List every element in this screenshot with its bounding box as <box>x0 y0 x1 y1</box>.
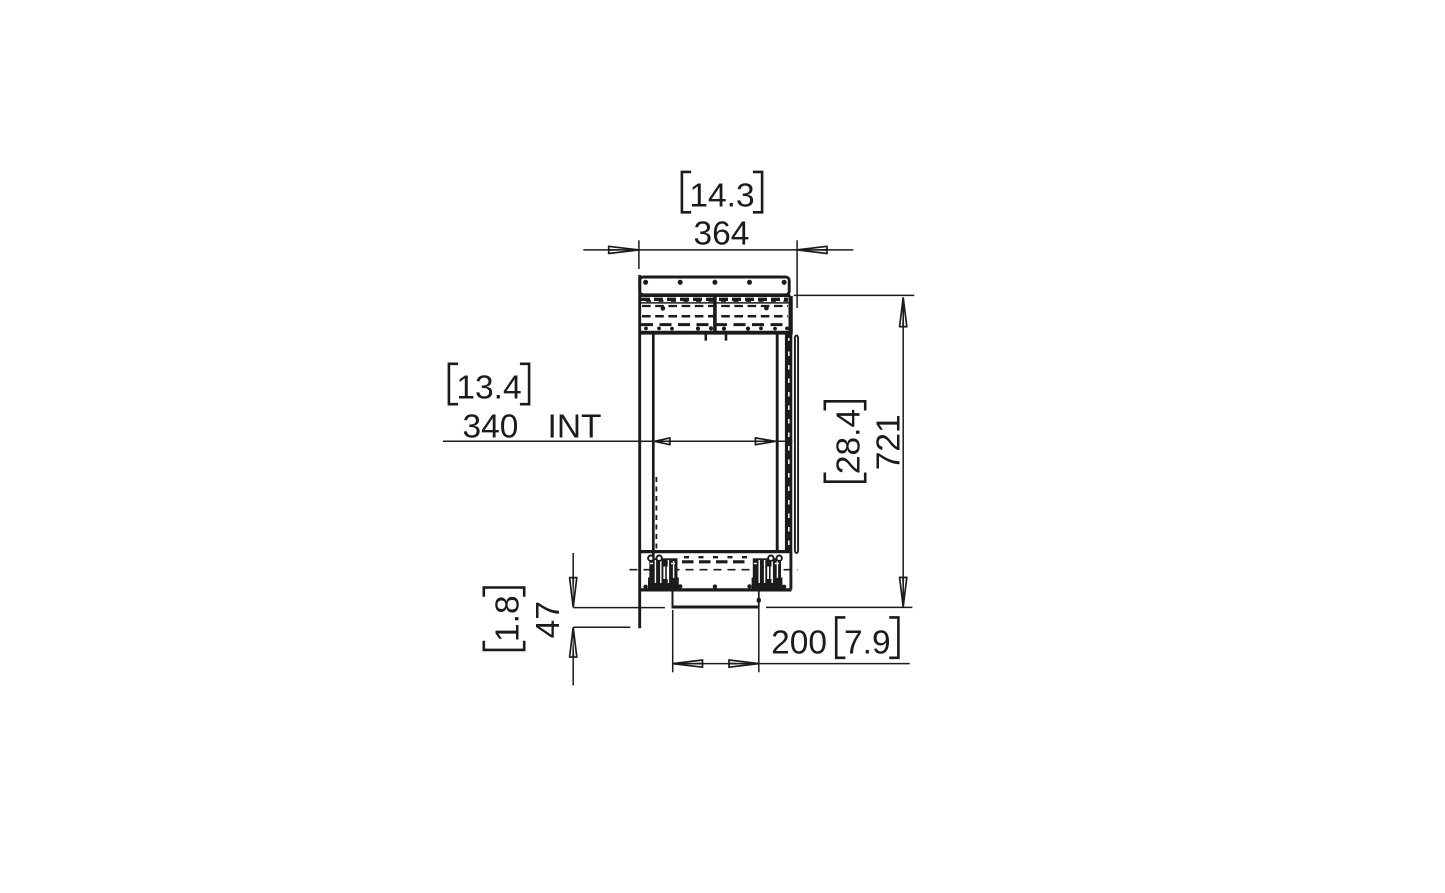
svg-text:364: 364 <box>694 215 750 252</box>
svg-text:340: 340 <box>463 409 519 446</box>
svg-text:721: 721 <box>870 414 907 470</box>
svg-text:7.9: 7.9 <box>844 625 891 662</box>
svg-text:200: 200 <box>771 625 827 662</box>
svg-text:13.4: 13.4 <box>456 370 521 407</box>
svg-text:1.8: 1.8 <box>490 595 527 642</box>
svg-text:47: 47 <box>530 601 567 638</box>
svg-text:28.4: 28.4 <box>831 409 868 474</box>
svg-text:14.3: 14.3 <box>689 178 754 215</box>
svg-text:INT: INT <box>548 409 602 446</box>
